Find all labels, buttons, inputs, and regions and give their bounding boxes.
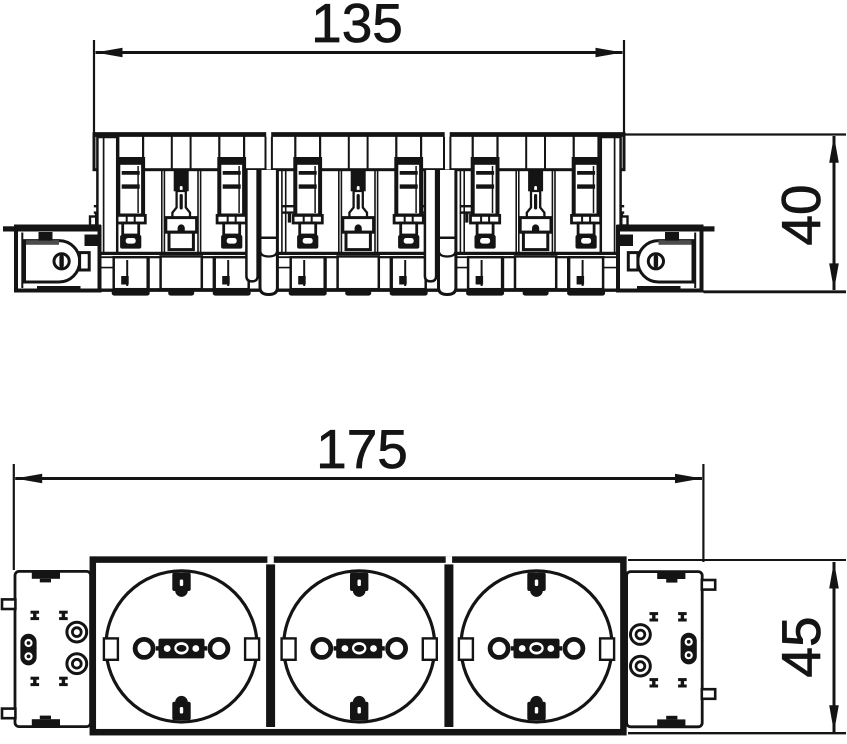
svg-text:40: 40: [770, 184, 832, 245]
svg-text:175: 175: [316, 418, 408, 480]
svg-text:45: 45: [770, 616, 832, 677]
svg-text:135: 135: [311, 0, 403, 54]
